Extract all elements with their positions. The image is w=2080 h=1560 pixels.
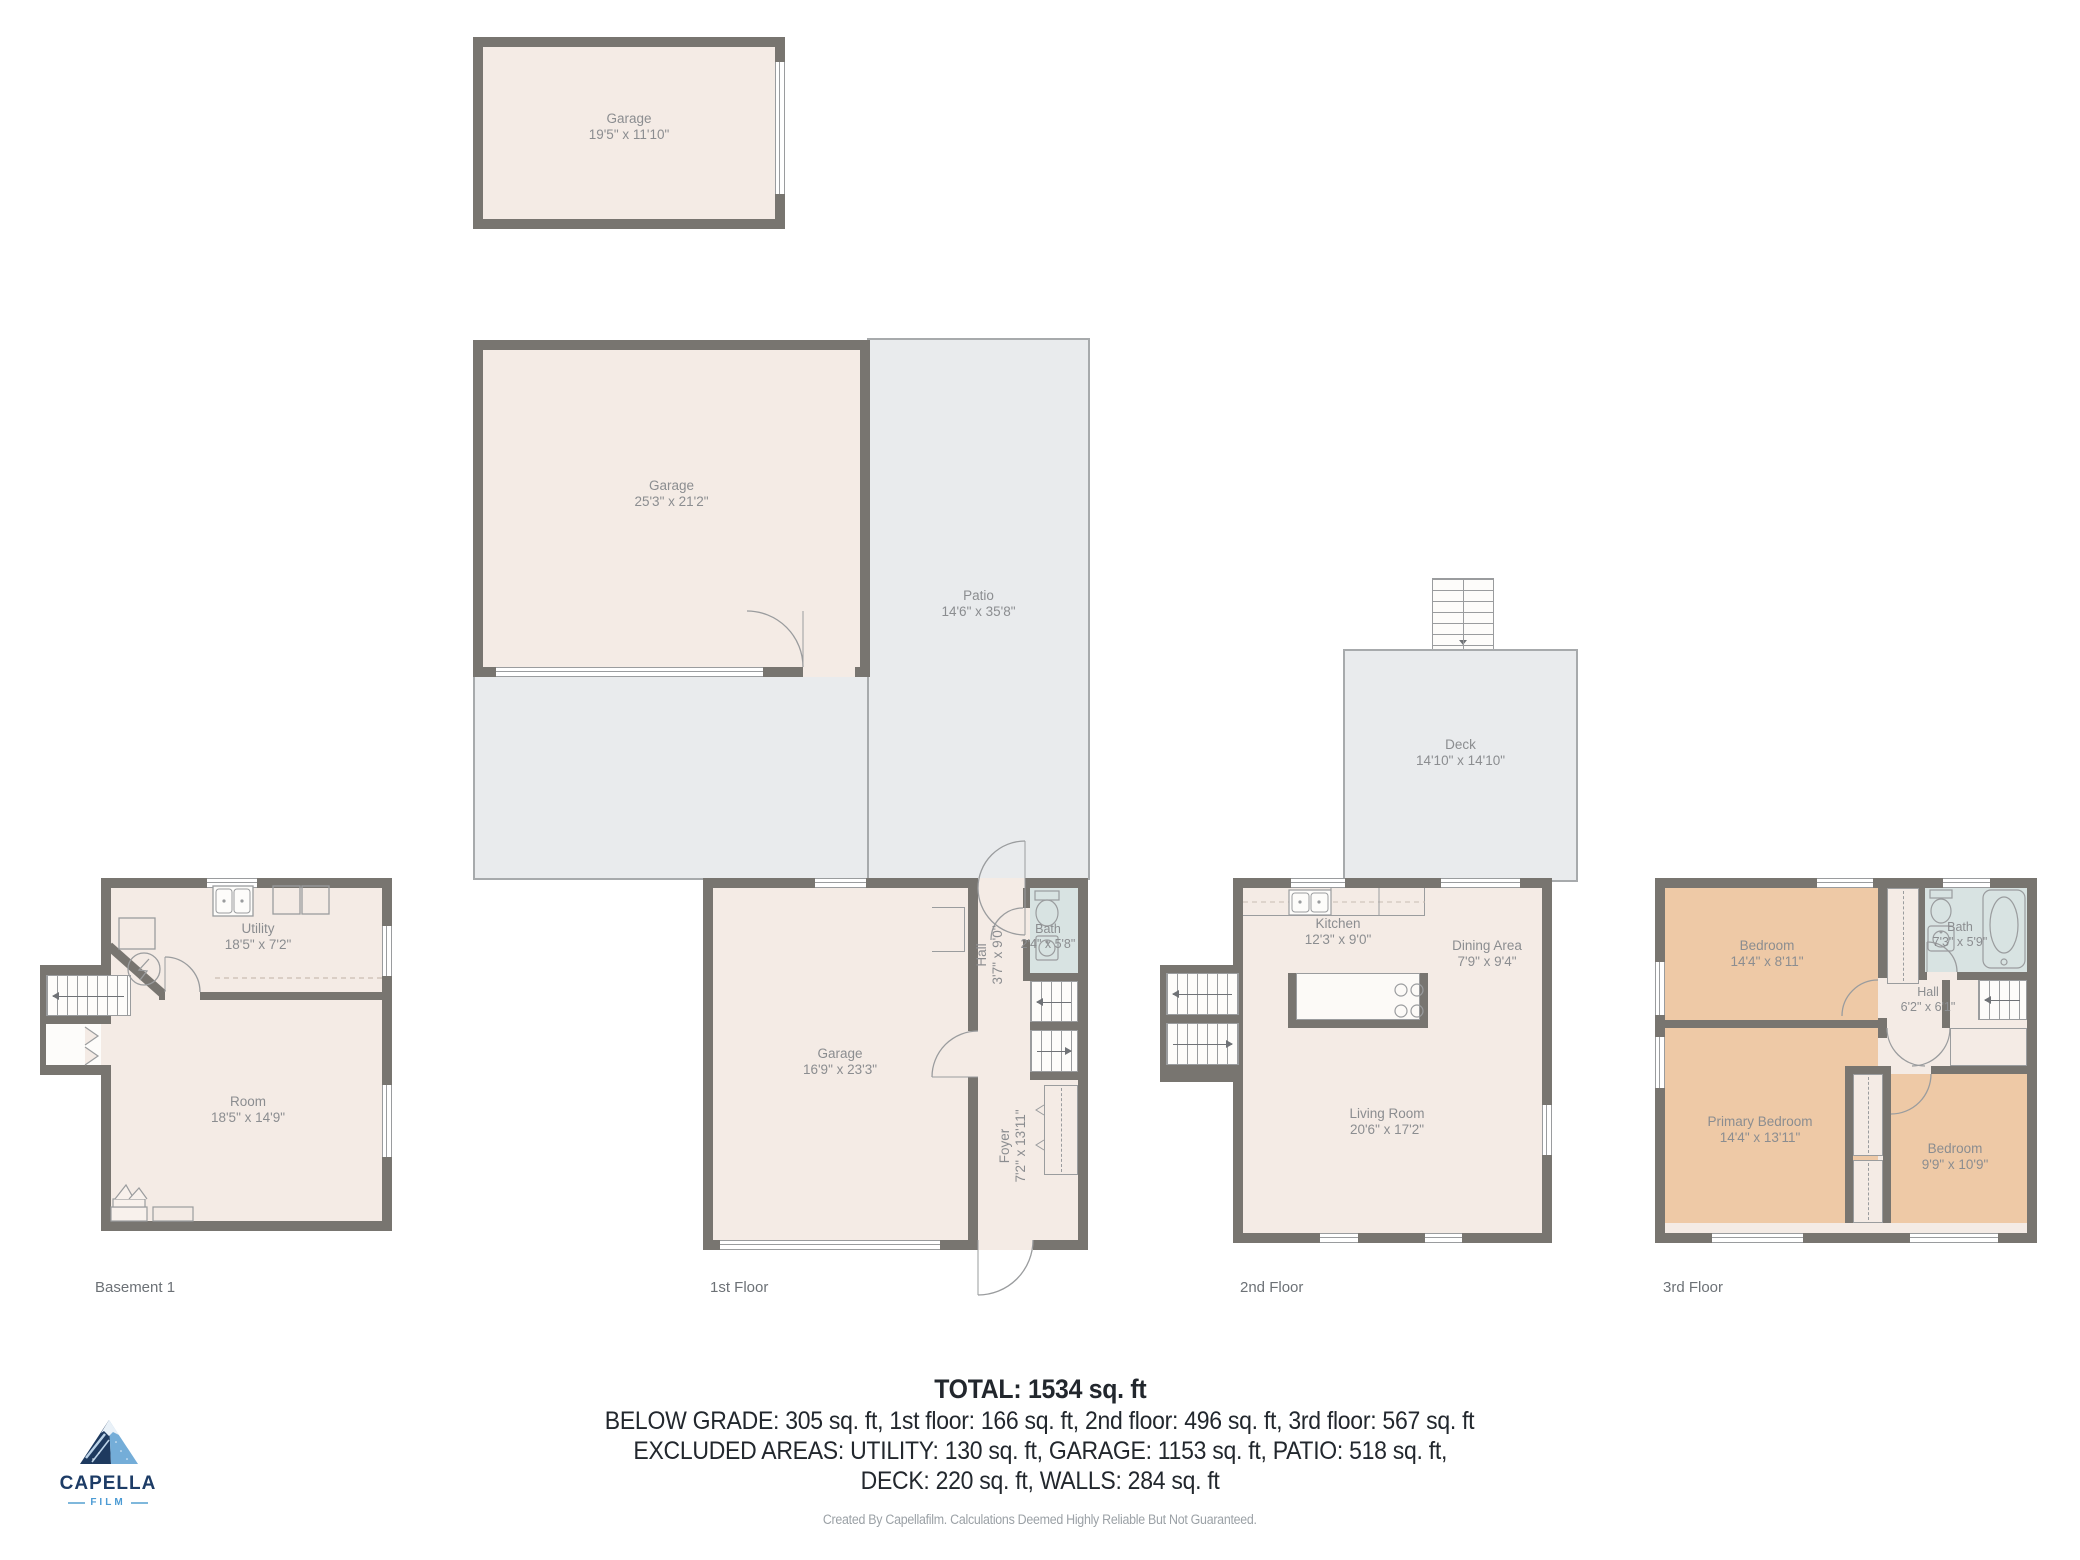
room-name: Bath (1008, 922, 1088, 937)
third-floor-plan: Bedroom 14'4" x 8'11" Bath 7'3" x 5'9" H… (1655, 878, 2037, 1243)
patio-lower-area (473, 677, 869, 880)
room-label-hall-1f: Hall 3'7" x 9'0" (974, 925, 1006, 984)
summary-line3: DECK: 220 sq. ft, WALLS: 284 sq. ft (0, 1467, 2080, 1496)
room-label-dining: Dining Area 7'9" x 9'4" (1417, 938, 1557, 970)
summary-line1: BELOW GRADE: 305 sq. ft, 1st floor: 166 … (0, 1407, 2080, 1436)
room-dims: 25'3" x 21'2" (473, 494, 870, 510)
room-label-garage-main: Garage 25'3" x 21'2" (473, 478, 870, 510)
room-name: Garage (473, 478, 870, 494)
room-label-bedroom2: Bedroom 9'9" x 10'9" (1885, 1141, 2025, 1173)
room-name: Primary Bedroom (1690, 1114, 1830, 1130)
room-label-patio: Patio 14'6" x 35'8" (869, 588, 1088, 620)
logo-sub-row: FILM (58, 1497, 158, 1508)
room-dims: 7'9" x 9'4" (1417, 954, 1557, 970)
room-dims: 18'5" x 14'9" (148, 1110, 348, 1126)
room-dims: 2'4" x 5'8" (1008, 937, 1088, 952)
room-name: Room (148, 1094, 348, 1110)
stairs-down (1166, 1023, 1239, 1065)
basement-plan: Utility 18'5" x 7'2" Room 18'5" x 14'9" (101, 878, 392, 1231)
room-name: Utility (158, 921, 358, 937)
room-label-room: Room 18'5" x 14'9" (148, 1094, 348, 1126)
room-dims: 12'3" x 9'0" (1268, 932, 1408, 948)
room-name: Bedroom (1885, 1141, 2025, 1157)
sheet-label-third: 3rd Floor (1663, 1279, 1723, 1296)
room-name: Garage (770, 1046, 910, 1062)
room-name: Bedroom (1697, 938, 1837, 954)
stairs-arrow (1173, 1044, 1232, 1045)
room-name: Dining Area (1417, 938, 1557, 954)
main-garage-plan: Garage 25'3" x 21'2" (473, 340, 870, 677)
room-dims: 14'4" x 8'11" (1697, 954, 1837, 970)
stairs-up (1166, 973, 1239, 1015)
deck-area: Deck 14'10" x 14'10" (1343, 649, 1578, 882)
room-label-foyer-1f: Foyer 7'2" x 13'11" (997, 1109, 1029, 1182)
patio-area: Patio 14'6" x 35'8" (867, 338, 1090, 880)
sheet-label-second: 2nd Floor (1240, 1279, 1303, 1296)
room-name: Garage (473, 111, 785, 127)
room-dims: 14'6" x 35'8" (869, 604, 1088, 620)
room-dims: 9'9" x 10'9" (1885, 1157, 2025, 1173)
room-dims: 7'2" x 13'11" (1013, 1109, 1029, 1182)
stairs-down-arrow (1459, 640, 1467, 649)
room-dims: 20'6" x 17'2" (1317, 1122, 1457, 1138)
room-label-utility: Utility 18'5" x 7'2" (158, 921, 358, 953)
room-label-garage-upper: Garage 19'5" x 11'10" (473, 111, 785, 143)
room-dims: 14'10" x 14'10" (1345, 753, 1576, 769)
summary-line2: EXCLUDED AREAS: UTILITY: 130 sq. ft, GAR… (0, 1437, 2080, 1466)
room-label-kitchen: Kitchen 12'3" x 9'0" (1268, 916, 1408, 948)
first-floor-plan: Garage 16'9" x 23'3" Hall 3'7" x 9'0" Ba… (703, 878, 1088, 1250)
room-label-deck: Deck 14'10" x 14'10" (1345, 737, 1576, 769)
mountain-logo-icon (71, 1417, 145, 1467)
room-name: Patio (869, 588, 1088, 604)
sheet-label-first: 1st Floor (710, 1279, 768, 1296)
room-name: Deck (1345, 737, 1576, 753)
room-label-living: Living Room 20'6" x 17'2" (1317, 1106, 1457, 1138)
room-name: Foyer (997, 1109, 1013, 1182)
stairs-arrow (1173, 994, 1232, 995)
floorplan-canvas: Garage 19'5" x 11'10" Patio 14'6" x 35'8… (0, 0, 2080, 1560)
room-label-garage-1f: Garage 16'9" x 23'3" (770, 1046, 910, 1078)
room-name: Bath (1905, 920, 2015, 935)
room-label-primary: Primary Bedroom 14'4" x 13'11" (1690, 1114, 1830, 1146)
room-dims: 18'5" x 7'2" (158, 937, 358, 953)
room-dims: 6'2" x 6'1" (1858, 1000, 1998, 1015)
second-floor-plan: Kitchen 12'3" x 9'0" Dining Area 7'9" x … (1233, 878, 1552, 1243)
capella-film-logo: CAPELLA FILM (58, 1417, 158, 1508)
sheet-label-basement: Basement 1 (95, 1279, 175, 1296)
room-name: Kitchen (1268, 916, 1408, 932)
upper-garage-plan: Garage 19'5" x 11'10" (473, 37, 785, 229)
room-label-bedroom1: Bedroom 14'4" x 8'11" (1697, 938, 1837, 970)
room-dims: 16'9" x 23'3" (770, 1062, 910, 1078)
summary-total: TOTAL: 1534 sq. ft (0, 1374, 2080, 1405)
room-label-bath-1f: Bath 2'4" x 5'8" (1008, 922, 1088, 952)
room-label-bath-3f: Bath 7'3" x 5'9" (1905, 920, 2015, 950)
room-dims: 14'4" x 13'11" (1690, 1130, 1830, 1146)
room-name: Living Room (1317, 1106, 1457, 1122)
room-name: Hall (974, 925, 990, 984)
logo-brand-text: CAPELLA (58, 1473, 158, 1495)
logo-bar-right (131, 1502, 148, 1504)
room-label-hall-3f: Hall 6'2" x 6'1" (1858, 985, 1998, 1015)
room-name: Hall (1858, 985, 1998, 1000)
logo-sub-text: FILM (90, 1497, 125, 1508)
deck-stairs (1432, 578, 1494, 652)
room-dims: 7'3" x 5'9" (1905, 935, 2015, 950)
room-dims: 3'7" x 9'0" (990, 925, 1006, 984)
room-dims: 19'5" x 11'10" (473, 127, 785, 143)
summary-disclaimer: Created By Capellafilm. Calculations Dee… (0, 1512, 2080, 1527)
logo-bar-left (68, 1502, 85, 1504)
